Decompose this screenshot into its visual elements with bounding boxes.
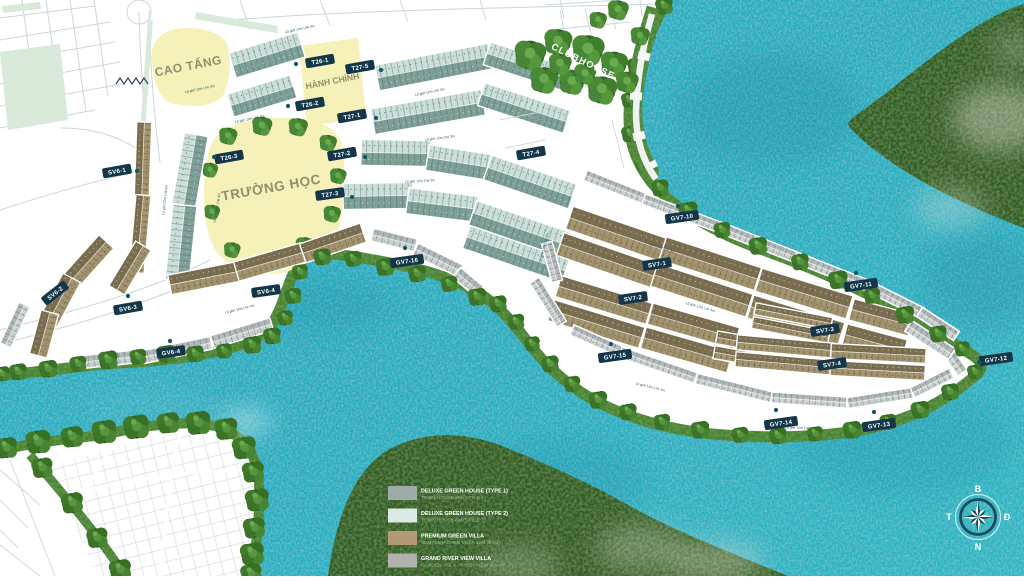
svg-text:GARDEN VILLA - RIVER VIEW (GV-: GARDEN VILLA - RIVER VIEW (GV-4) (421, 563, 504, 569)
svg-text:DELUXE GREEN HOUSE (TYPE 1): DELUXE GREEN HOUSE (TYPE 1) (421, 489, 508, 495)
svg-text:GRAND RIVER VIEW VILLA: GRAND RIVER VIEW VILLA (421, 556, 491, 562)
svg-text:B: B (975, 484, 982, 494)
svg-text:TOWN HOUSE 6M (STYLE 1): TOWN HOUSE 6M (STYLE 1) (421, 495, 486, 501)
svg-text:TOWN HOUSE 6M (STYLE 2): TOWN HOUSE 6M (STYLE 2) (421, 518, 486, 524)
svg-text:T: T (946, 512, 952, 522)
svg-text:PREMIUM GREEN VILLA: PREMIUM GREEN VILLA (421, 534, 484, 540)
svg-text:N: N (975, 542, 982, 552)
svg-text:SEMI-DETACHED VILLA 12M (SV-1): SEMI-DETACHED VILLA 12M (SV-1) (421, 540, 500, 546)
svg-text:DELUXE GREEN HOUSE (TYPE 2): DELUXE GREEN HOUSE (TYPE 2) (421, 511, 508, 517)
svg-text:Đ: Đ (1004, 512, 1011, 522)
